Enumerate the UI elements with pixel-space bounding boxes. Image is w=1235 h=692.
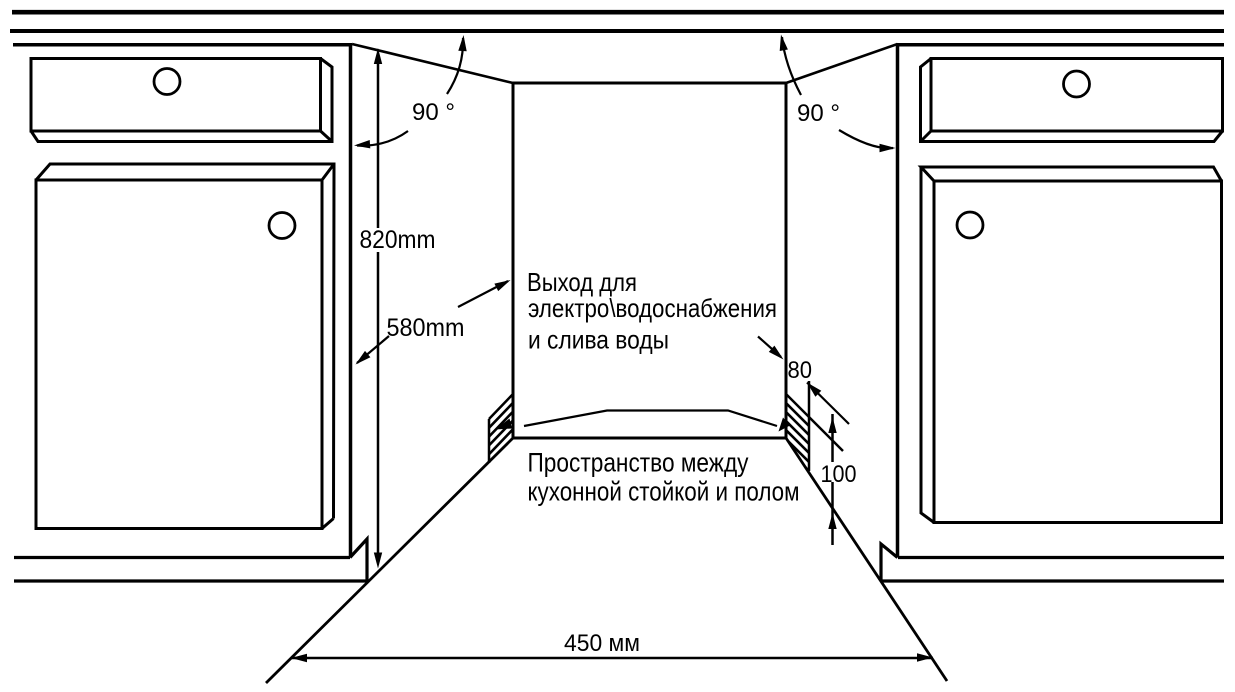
svg-text:Пространство между: Пространство между [528,448,749,478]
svg-text:820mm: 820mm [360,226,436,254]
svg-text:кухонной стойкой и полом: кухонной стойкой и полом [528,477,800,507]
svg-text:90 °: 90 ° [797,100,840,127]
svg-text:электро\водоснабжения: электро\водоснабжения [528,293,777,323]
svg-text:580mm: 580mm [387,314,465,342]
svg-text:90 °: 90 ° [412,99,455,126]
svg-text:450 мм: 450 мм [564,630,640,657]
svg-text:100: 100 [821,461,857,488]
svg-text:и слива воды: и слива воды [528,325,669,355]
svg-text:80: 80 [788,357,813,384]
